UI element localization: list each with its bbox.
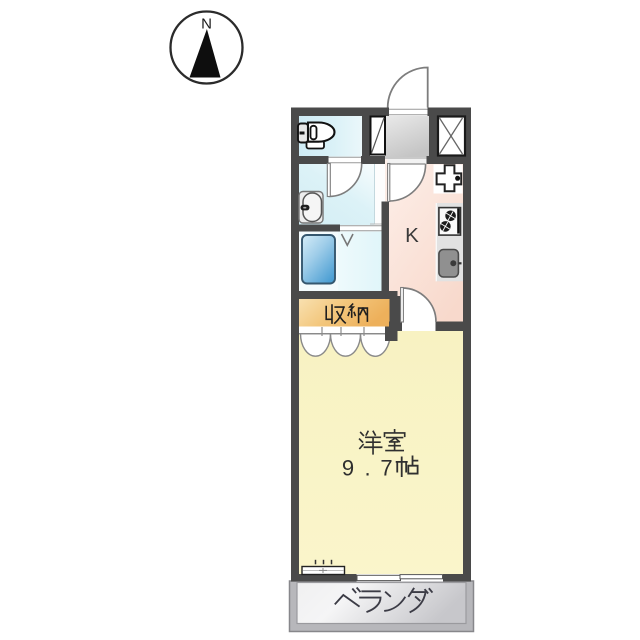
svg-text:7: 7 [380,456,392,481]
svg-text:K: K [405,224,419,247]
svg-text:9: 9 [342,456,354,481]
svg-text:.: . [364,456,370,481]
svg-text:N: N [201,16,212,33]
